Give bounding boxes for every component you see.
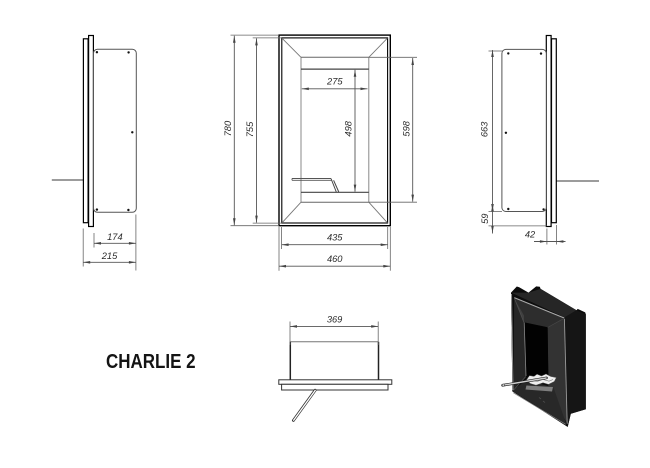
- svg-text:369: 369: [327, 314, 343, 324]
- svg-text:755: 755: [245, 121, 255, 137]
- svg-text:598: 598: [401, 120, 411, 136]
- svg-text:59: 59: [480, 214, 490, 224]
- svg-text:780: 780: [223, 120, 233, 136]
- svg-text:460: 460: [327, 254, 343, 264]
- svg-text:663: 663: [479, 121, 489, 137]
- svg-text:435: 435: [327, 233, 343, 243]
- svg-text:42: 42: [525, 230, 536, 240]
- svg-text:CHARLIE 2: CHARLIE 2: [106, 351, 196, 373]
- svg-text:275: 275: [326, 77, 343, 87]
- svg-text:498: 498: [344, 120, 354, 136]
- svg-text:174: 174: [107, 232, 123, 242]
- svg-text:215: 215: [101, 251, 118, 261]
